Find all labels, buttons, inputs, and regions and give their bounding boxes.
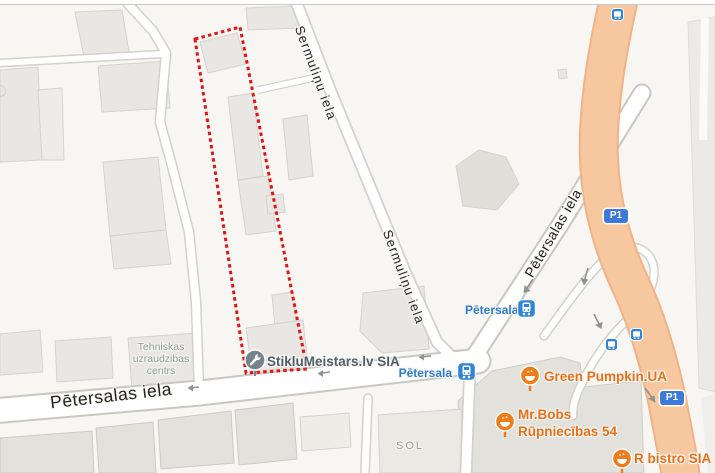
bus-icon[interactable]	[605, 338, 618, 356]
transit-stop-label-petersala-2[interactable]: Pētersala	[396, 366, 452, 380]
tram-icon[interactable]	[457, 362, 476, 386]
route-badge-p1-upper: P1	[604, 209, 628, 223]
area-label-tehniskas: Tehniskas uzraudzibas centrs	[133, 341, 190, 377]
map-screenshot: Sermuliņu iela Sermuliņu iela Pētersalas…	[0, 0, 715, 473]
window-top-edge	[0, 0, 715, 5]
tram-icon[interactable]	[517, 299, 536, 323]
wrench-pin-icon[interactable]	[243, 349, 267, 383]
poi-label-green-pumpkin[interactable]: Green Pumpkin.UA	[544, 369, 667, 384]
food-bowl-pin-icon[interactable]	[519, 365, 541, 398]
poi-label-glazier[interactable]: StikluMeistars.lv SIA	[267, 354, 400, 369]
area-label-sol: SOL	[396, 440, 424, 452]
tehniskas-line1: Tehniskas	[133, 341, 190, 353]
poi-label-r-bistro[interactable]: R bistro SIA	[634, 451, 711, 466]
route-badge-p1-lower: P1	[660, 391, 684, 405]
tehniskas-line2: uzraudzibas	[133, 353, 190, 365]
poi-label-mr-bobs-line2[interactable]: Rūpniecības 54	[518, 424, 617, 439]
bus-icon[interactable]	[611, 8, 624, 26]
food-bowl-pin-icon[interactable]	[494, 411, 516, 444]
transit-stop-label-petersala-1[interactable]: Pētersala	[465, 303, 513, 317]
poi-label-mr-bobs-line1[interactable]: Mr.Bobs	[518, 407, 571, 422]
bus-icon[interactable]	[630, 328, 643, 346]
tehniskas-line3: centrs	[133, 365, 190, 377]
food-bowl-pin-icon[interactable]	[611, 448, 633, 473]
